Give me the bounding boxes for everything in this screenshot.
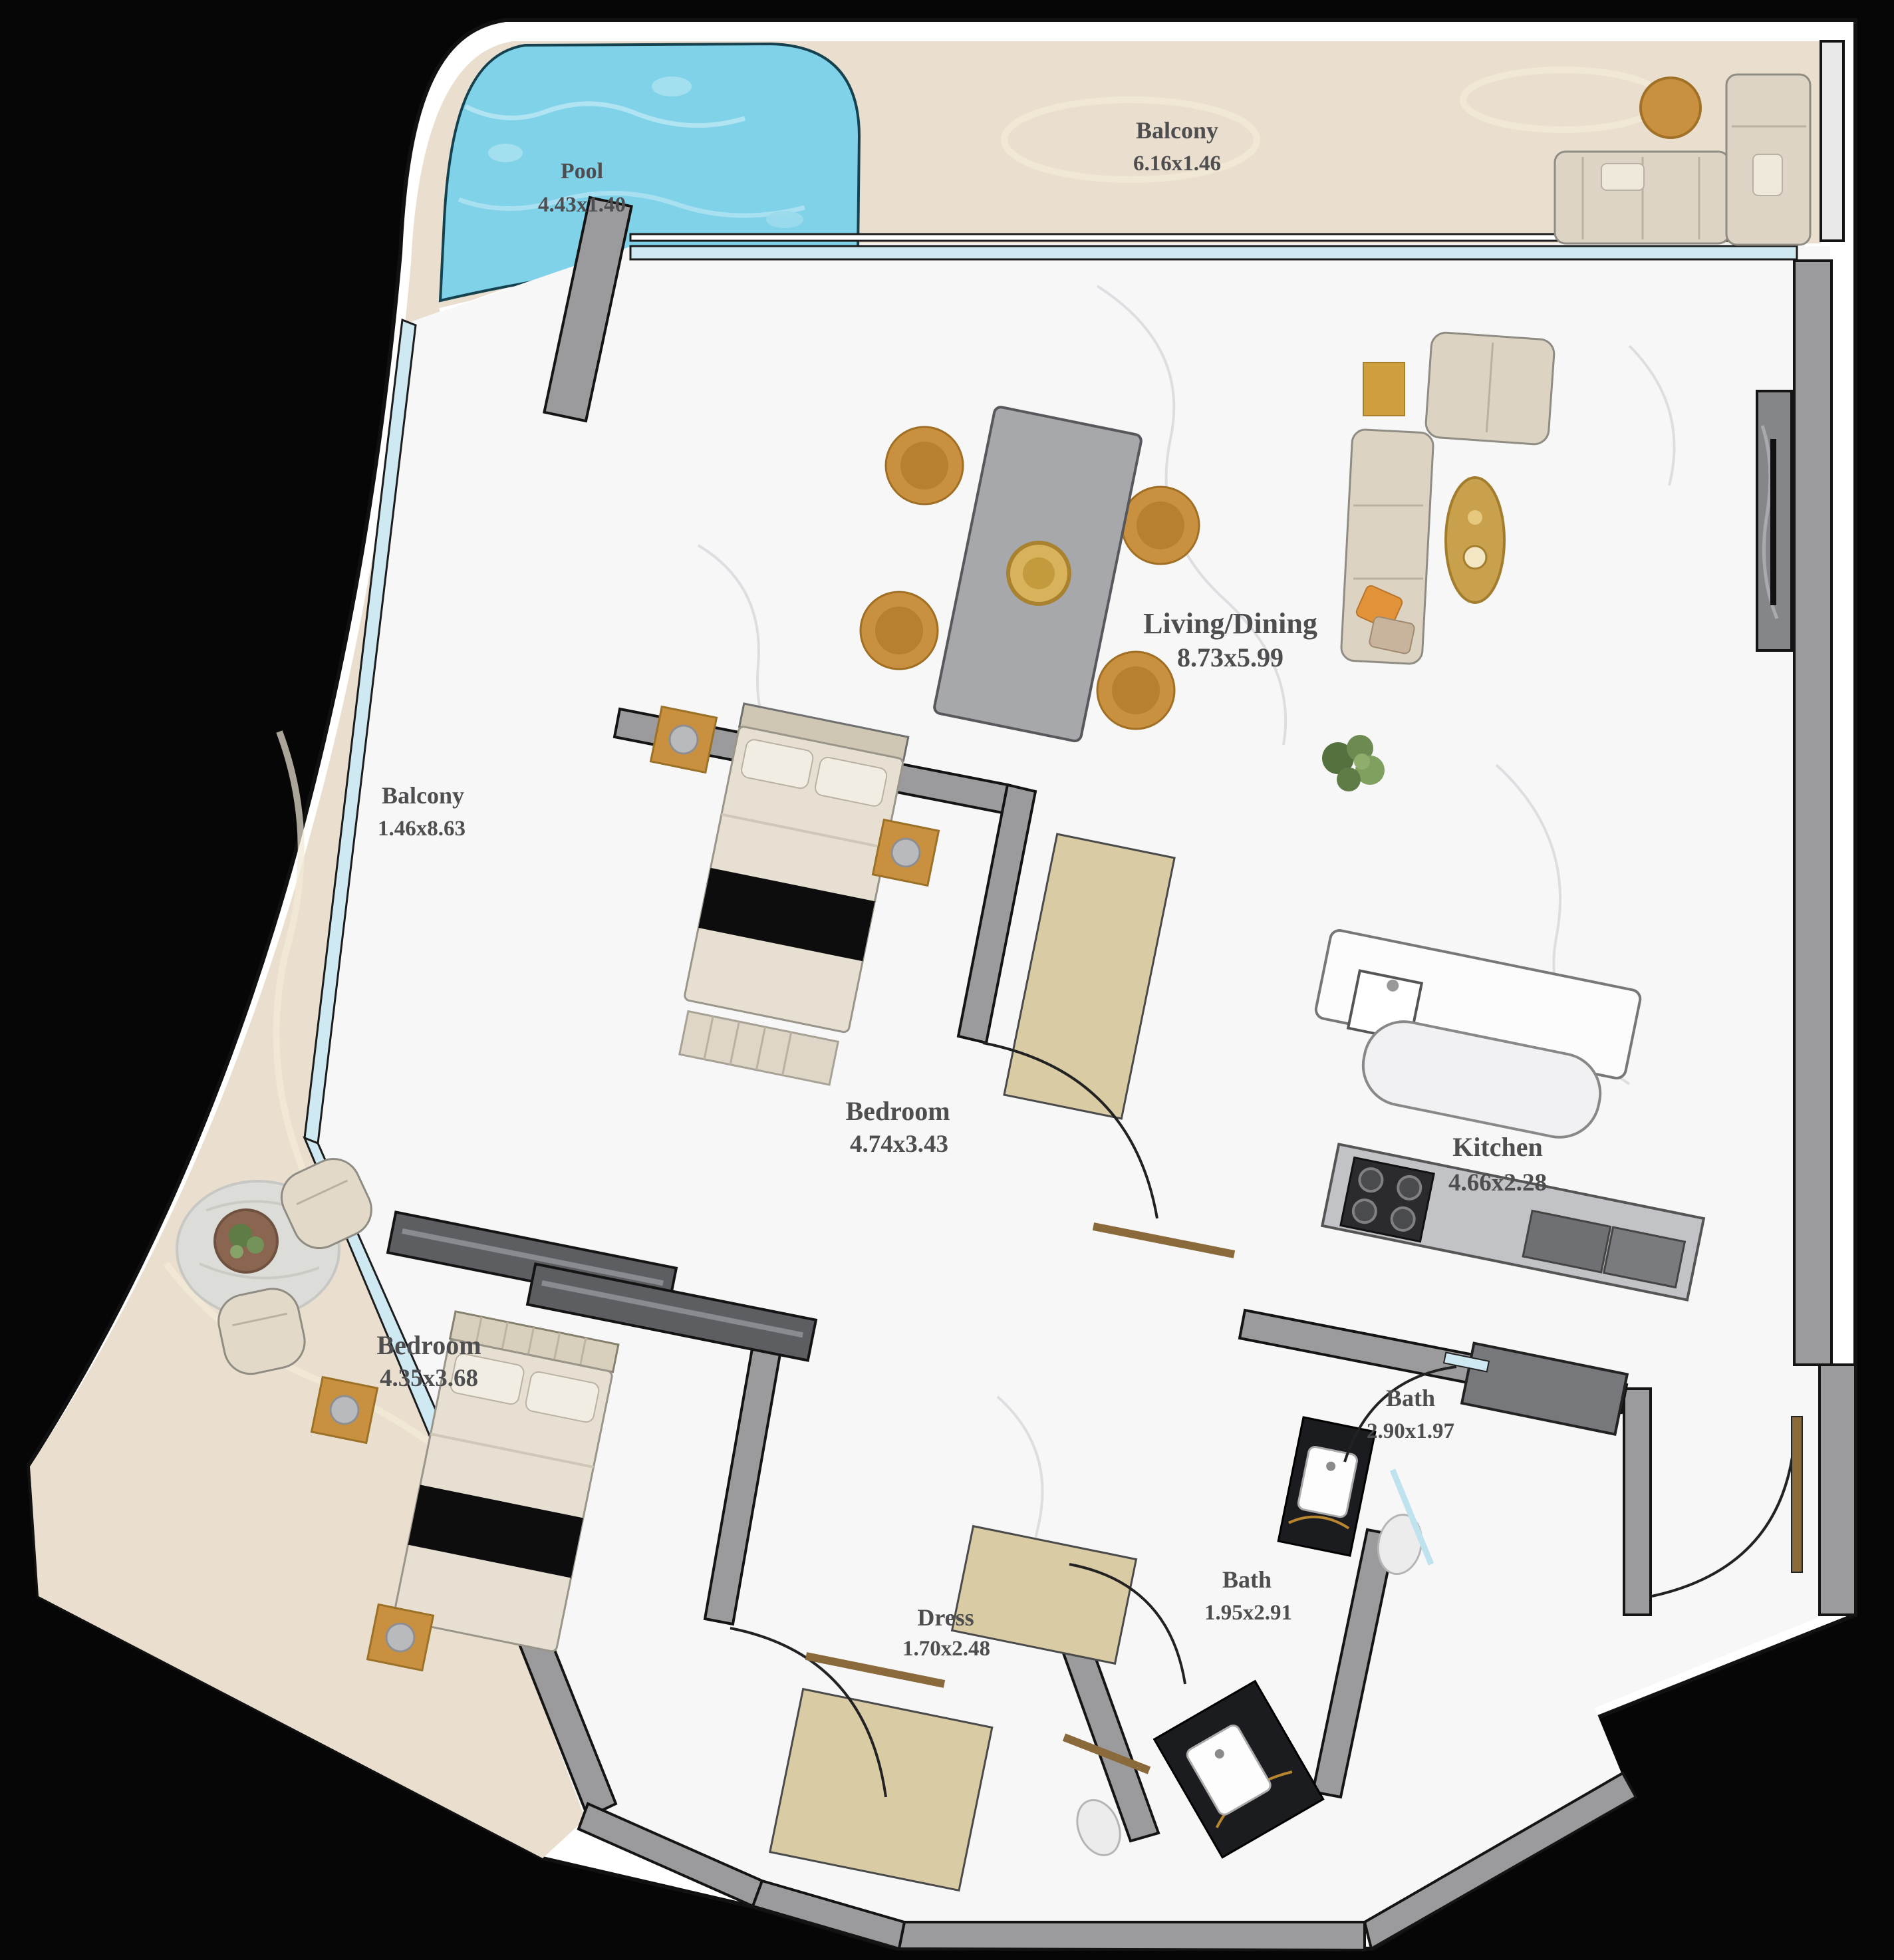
outdoor-sofa-pillow — [1601, 164, 1644, 190]
balcony-left-label: Balcony — [382, 782, 464, 809]
wall-bottom-3 — [899, 1922, 1365, 1950]
pool-light — [488, 144, 523, 162]
wall-living-right — [1794, 261, 1831, 1365]
bedroom1-label: Bedroom — [845, 1096, 950, 1126]
nightstand — [873, 819, 938, 885]
bedroom1-dims: 4.74x3.43 — [850, 1131, 948, 1158]
wall-entry-right — [1820, 1365, 1855, 1615]
bedroom2-dims: 4.35x3.68 — [380, 1365, 478, 1392]
tv-console — [1757, 391, 1792, 650]
kitchen-dims: 4.66x2.28 — [1448, 1169, 1547, 1196]
dress-dims: 1.70x2.48 — [902, 1637, 990, 1661]
pool-light — [766, 211, 803, 228]
bath2-dims: 1.95x2.91 — [1204, 1601, 1292, 1625]
nightstand — [367, 1604, 433, 1670]
bath1-dims: 2.90x1.97 — [1367, 1419, 1454, 1443]
coffee-table-oval — [1446, 478, 1504, 603]
bedroom2-label: Bedroom — [376, 1330, 481, 1360]
door-leaf-entrance — [1792, 1417, 1802, 1572]
nightstand — [311, 1377, 377, 1443]
balcony-left-dims: 1.46x8.63 — [378, 817, 466, 841]
gold-rug — [1363, 362, 1405, 416]
kitchen-label: Kitchen — [1452, 1132, 1543, 1162]
bath2-label: Bath — [1222, 1566, 1272, 1593]
outdoor-sofa-pillow — [1753, 154, 1782, 196]
floor-plan-canvas: Pool 4.43x1.40 Balcony 6.16x1.46 Living/… — [0, 0, 1894, 1960]
wall-balcony-right — [1821, 41, 1843, 241]
window-top-glass — [630, 246, 1797, 259]
tv-screen — [1770, 439, 1776, 605]
pool-light — [652, 76, 692, 96]
living-dining-label: Living/Dining — [1143, 607, 1317, 640]
pool-label: Pool — [561, 159, 603, 184]
bath1-label: Bath — [1386, 1385, 1435, 1411]
dress-label: Dress — [917, 1604, 974, 1631]
nightstand — [650, 706, 716, 772]
outdoor-side-table — [1641, 78, 1700, 138]
balcony-top-label: Balcony — [1136, 117, 1218, 144]
balcony-top-dims: 6.16x1.46 — [1133, 152, 1221, 176]
pool-dims: 4.43x1.40 — [538, 193, 626, 217]
wall-entry-left — [1624, 1389, 1651, 1615]
living-dining-dims: 8.73x5.99 — [1177, 642, 1284, 672]
